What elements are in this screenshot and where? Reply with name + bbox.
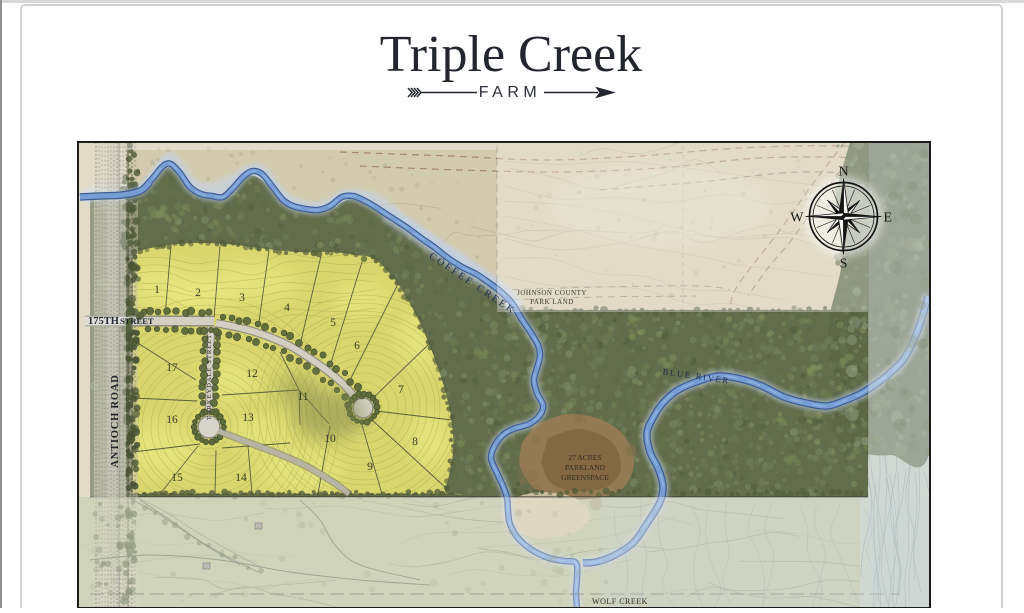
svg-text:14: 14	[235, 472, 247, 484]
svg-text:N: N	[838, 165, 848, 180]
svg-text:175TH: 175TH	[88, 316, 119, 327]
svg-text:5: 5	[330, 317, 336, 329]
svg-text:JOHNSON COUNTY: JOHNSON COUNTY	[517, 289, 587, 297]
svg-text:10: 10	[324, 433, 336, 445]
svg-text:17: 17	[166, 362, 178, 374]
svg-text:12: 12	[246, 368, 258, 380]
svg-text:PARKLAND: PARKLAND	[565, 463, 606, 472]
svg-text:15: 15	[171, 472, 183, 484]
svg-text:6: 6	[354, 340, 360, 352]
svg-text:3: 3	[239, 292, 245, 304]
svg-text:7: 7	[398, 384, 404, 396]
svg-text:1: 1	[154, 284, 160, 296]
svg-text:2: 2	[195, 287, 201, 299]
svg-text:S: S	[840, 257, 848, 272]
svg-text:STREET: STREET	[120, 316, 154, 326]
svg-text:4: 4	[284, 302, 290, 314]
svg-text:16: 16	[166, 414, 178, 426]
svg-text:E: E	[884, 211, 893, 226]
svg-text:W: W	[790, 211, 804, 226]
svg-text:Triple Creek: Triple Creek	[380, 26, 642, 83]
svg-text:PARK LAND: PARK LAND	[530, 298, 574, 306]
svg-text:8: 8	[412, 436, 418, 448]
svg-text:11: 11	[297, 391, 308, 403]
svg-text:GREENSPACE: GREENSPACE	[561, 473, 609, 482]
svg-text:ANTIOCH ROAD: ANTIOCH ROAD	[110, 374, 121, 467]
svg-text:WOLF CREEK: WOLF CREEK	[592, 597, 648, 606]
svg-text:13: 13	[242, 412, 254, 424]
svg-text:TURKEYDALE STREET: TURKEYDALE STREET	[206, 334, 213, 420]
svg-text:9: 9	[367, 461, 373, 473]
svg-text:27 ACRES: 27 ACRES	[568, 453, 601, 462]
svg-text:FARM: FARM	[479, 84, 541, 101]
